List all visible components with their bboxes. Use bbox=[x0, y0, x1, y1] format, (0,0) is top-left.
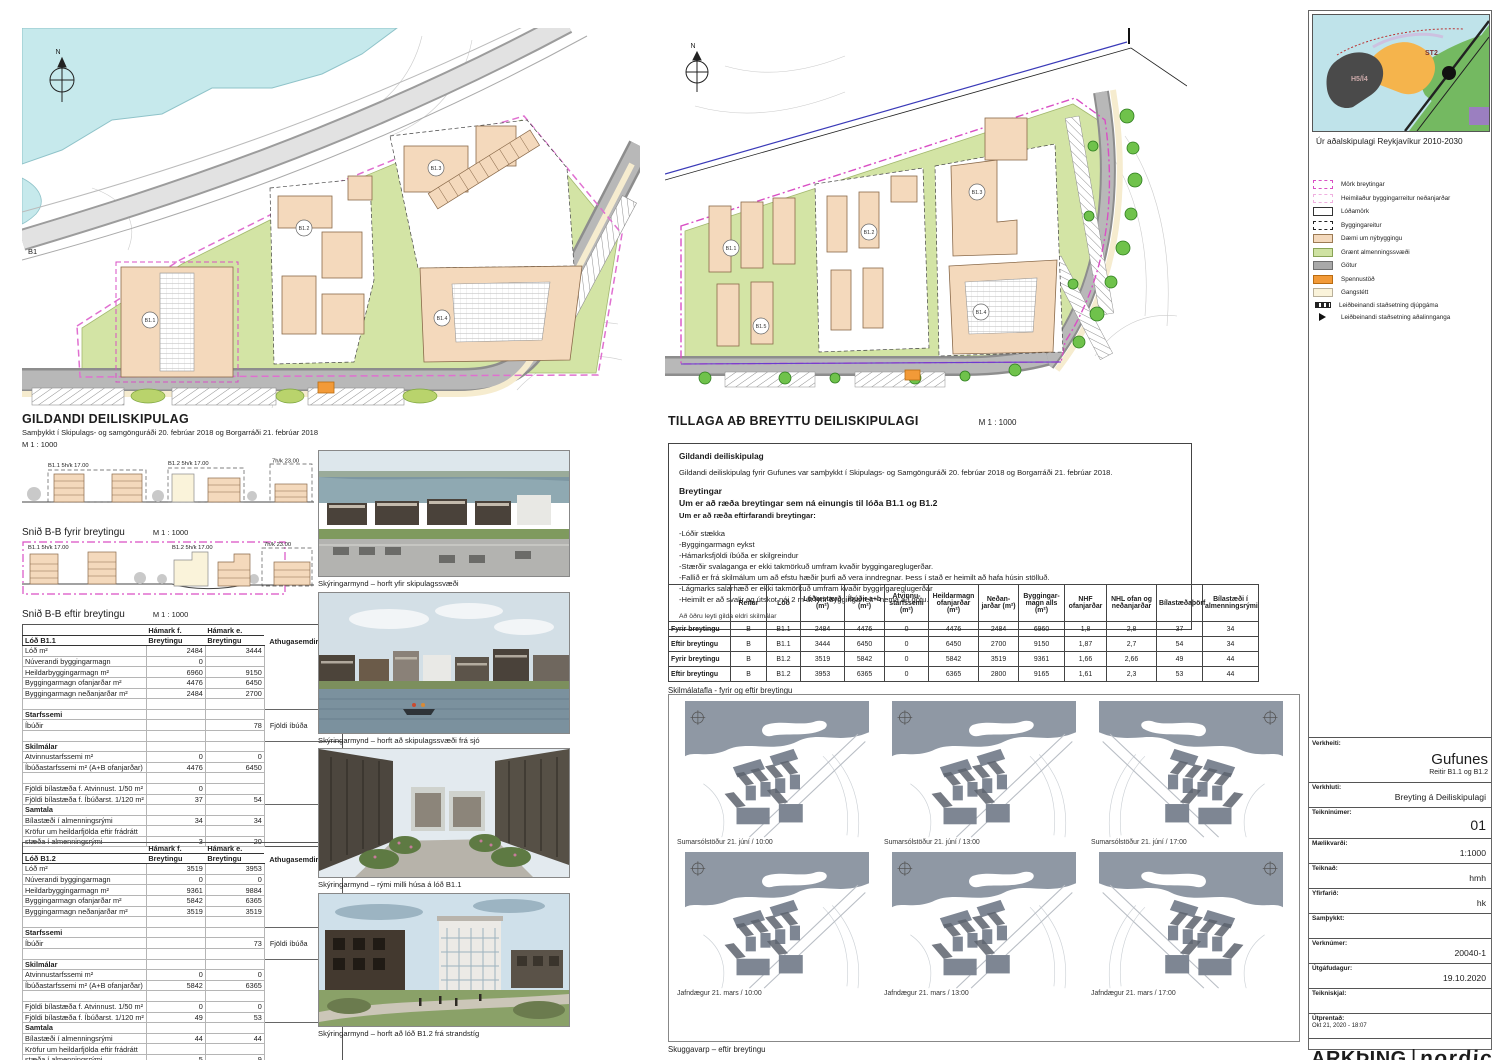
table-row: Skilmálar bbox=[23, 741, 343, 752]
shadow-cell: Sumarsólstöður 21. júní / 10:00 bbox=[677, 701, 877, 846]
photo-1: Skýringarmynd – horft yfir skipulagssvæð… bbox=[318, 450, 568, 588]
section-after-scale: M 1 : 1000 bbox=[153, 610, 188, 619]
logo-nordic: nordic bbox=[1420, 1047, 1495, 1060]
table-row: Fjöldi bílastæða f. Atvinnust. 1/50 m² 0 bbox=[23, 783, 343, 794]
table-row: Heildarbyggingarmagn m² 9361 9884 bbox=[23, 885, 343, 896]
section-before-label: Snið B-B fyrir breytingu bbox=[22, 527, 125, 538]
legend-item: Gangstétt bbox=[1313, 288, 1487, 297]
table-row: Lóð m² 3519 3953 bbox=[23, 864, 343, 875]
column-header: Bílastæðaþörf bbox=[1157, 585, 1203, 622]
title-block-field: Útgáfudagur: 19.10.2020 bbox=[1309, 964, 1491, 989]
legend-swatch bbox=[1313, 234, 1333, 243]
boat bbox=[403, 709, 435, 715]
legend-item: Byggingareitur bbox=[1313, 221, 1487, 230]
shadow-cell: Sumarsólstöður 21. júní / 13:00 bbox=[884, 701, 1084, 846]
table-row: Núverandi byggingarmagn 0 0 bbox=[23, 874, 343, 885]
table-row: Fjöldi bílastæða f. Atvinnust. 1/50 m² 0… bbox=[23, 1001, 343, 1012]
legend-label: Spennustöð bbox=[1341, 276, 1375, 283]
table-row: Skilmálar bbox=[23, 959, 343, 970]
section-after-label: Snið B-B eftir breytingu bbox=[22, 609, 125, 620]
shadow-cell: Sumarsólstöður 21. júní / 17:00 bbox=[1091, 701, 1291, 846]
svg-text:7h/k 23.00: 7h/k 23.00 bbox=[272, 459, 299, 465]
legend-item: Grænt almenningssvæði bbox=[1313, 248, 1487, 257]
table-row bbox=[23, 991, 343, 1002]
table-row: Starfssemi bbox=[23, 927, 343, 938]
plan-legend: Mörk breytingar Heimilaður byggingarreit… bbox=[1309, 174, 1491, 332]
bullet-line: -Hámarksfjöldi íbúða er skilgreindur bbox=[679, 550, 1181, 561]
svg-text:B1.2: B1.2 bbox=[299, 226, 310, 232]
title-block-field: Mælikvarði: 1:1000 bbox=[1309, 839, 1491, 864]
logo-arkthing: ARKÞING bbox=[1311, 1048, 1407, 1060]
svg-text:B1.2 5h/k 17.00: B1.2 5h/k 17.00 bbox=[168, 461, 209, 467]
inset-label-h5: H5/Í4 bbox=[1351, 74, 1368, 83]
sea bbox=[22, 28, 397, 164]
title-block-field: Verknúmer: 20040-1 bbox=[1309, 939, 1491, 964]
column-header bbox=[669, 585, 731, 622]
table-row: Fjöldi bílastæða f. Íbúðarst. 1/120 m² 3… bbox=[23, 794, 343, 805]
svg-text:B1.4: B1.4 bbox=[437, 316, 448, 322]
project-sub: Reitir B1.1 og B1.2 bbox=[1312, 769, 1488, 776]
spennustod bbox=[318, 382, 334, 393]
shadow-cell: Jafndægur 21. mars / 17:00 bbox=[1091, 852, 1291, 997]
legend-swatch bbox=[1313, 261, 1333, 270]
legend-swatch bbox=[1319, 313, 1326, 321]
svg-text:B1.3: B1.3 bbox=[431, 166, 442, 172]
svg-text:7h/k 23.00: 7h/k 23.00 bbox=[264, 542, 291, 548]
table-row: Byggingarmagn ofanjarðar m² 4476 6450 bbox=[23, 677, 343, 688]
photo-4-caption: Skýringarmynd – horft að lóð B1.2 frá st… bbox=[318, 1029, 568, 1038]
svg-text:B1.3: B1.3 bbox=[972, 190, 983, 196]
lot-b12-buildings bbox=[815, 168, 929, 352]
legend-swatch bbox=[1313, 275, 1333, 284]
svg-text:B1.4: B1.4 bbox=[976, 310, 987, 316]
svg-text:B1.2 5h/k 17.00: B1.2 5h/k 17.00 bbox=[172, 545, 213, 551]
svg-text:B1.1: B1.1 bbox=[145, 318, 156, 324]
legend-label: Leiðbeinandi staðsetning djúpgáma bbox=[1339, 302, 1438, 309]
table-row: Kröfur um heildarfjölda eftir frádrátt bbox=[23, 1044, 343, 1055]
legend-label: Mörk breytingar bbox=[1341, 181, 1385, 188]
right-plan-title: TILLAGA AÐ BREYTTU DEILISKIPULAGI bbox=[668, 414, 919, 428]
bottom-road bbox=[665, 356, 1047, 387]
logo-divider: | bbox=[1411, 1045, 1417, 1060]
table-row: stæða í almenningsrými 5 9 bbox=[23, 1054, 343, 1060]
legend-item: Dæmi um nýbyggingu bbox=[1313, 234, 1487, 243]
table-row: Starfssemi bbox=[23, 709, 343, 720]
column-header: NHF ofanjarðar bbox=[1065, 585, 1107, 622]
table-row: Íbúðir 73 Fjöldi íbúða bbox=[23, 938, 343, 949]
table-row: Atvinnustarfssemi m² 0 0 bbox=[23, 752, 343, 763]
info-heading-1: Gildandi deiliskipulag bbox=[679, 451, 1181, 463]
table-row: Íbúðir 78 Fjöldi íbúða bbox=[23, 720, 343, 731]
table-row: Íbúðastarfssemi m² (A+B ofanjarðar) 5842… bbox=[23, 980, 343, 991]
shadow-caption: Sumarsólstöður 21. júní / 10:00 bbox=[677, 839, 877, 846]
table-row: Fyrir breytinguBB1.1 248444760 447624846… bbox=[669, 622, 1259, 637]
legend-label: Grænt almenningssvæði bbox=[1341, 249, 1410, 256]
project-field: Verkheiti: Gufunes Reitir B1.1 og B1.2 bbox=[1309, 738, 1491, 783]
legend-swatch bbox=[1313, 288, 1333, 297]
site-plan-existing: N B1 B1.1 B1.2 B1.3 B1.4 bbox=[22, 28, 640, 408]
table-row bbox=[23, 730, 343, 741]
table-row: Atvinnustarfssemi m² 0 0 bbox=[23, 970, 343, 981]
column-header: Bílastæði í almenningsrými bbox=[1203, 585, 1259, 622]
title-block-column: ST2 H5/Í4 Úr aðalskipulagi Reykjavíkur 2… bbox=[1308, 10, 1492, 1050]
legend-label: Heimilaður byggingarreitur neðanjarðar bbox=[1341, 195, 1450, 202]
title-block-field: Teikniskjal: bbox=[1309, 989, 1491, 1014]
table-row: Byggingarmagn neðanjarðar m² 2484 2700 bbox=[23, 688, 343, 699]
shadow-cell: Jafndægur 21. mars / 13:00 bbox=[884, 852, 1084, 997]
north-arrow bbox=[686, 52, 708, 92]
svg-text:B1.5: B1.5 bbox=[756, 324, 767, 330]
info-heading-2: Breytingar bbox=[679, 485, 1181, 497]
photo-1-caption: Skýringarmynd – horft yfir skipulagssvæð… bbox=[318, 579, 568, 588]
left-plan-title-block: GILDANDI DEILISKIPULAG Samþykkt í Skipul… bbox=[22, 412, 382, 449]
title-block-field: Útprentað: Okt 21, 2020 - 18:07 bbox=[1309, 1014, 1491, 1039]
bullet-line: -Byggingarmagn eykst bbox=[679, 539, 1181, 550]
column-header: Atvinnu- starfssemi (m²) bbox=[885, 585, 929, 622]
photo-3-caption: Skýringarmynd – rými milli húsa á lóð B1… bbox=[318, 880, 568, 889]
table-row: Kröfur um heildarfjölda eftir frádrátt bbox=[23, 826, 343, 837]
table-row: Núverandi byggingarmagn 0 bbox=[23, 656, 343, 667]
column-header: NHL ofan og neðanjarðar bbox=[1107, 585, 1157, 622]
inset-label-st2: ST2 bbox=[1425, 50, 1438, 57]
svg-text:B1.2: B1.2 bbox=[864, 230, 875, 236]
legend-swatch bbox=[1313, 180, 1333, 189]
shadow-caption: Jafndægur 21. mars / 13:00 bbox=[884, 990, 1084, 997]
shadow-cell: Jafndægur 21. mars / 10:00 bbox=[677, 852, 877, 997]
right-plan-scale: M 1 : 1000 bbox=[979, 418, 1017, 427]
left-plan-scale: M 1 : 1000 bbox=[22, 440, 382, 449]
legend-swatch bbox=[1315, 302, 1331, 308]
section-after: B1.1 5h/k 17.00 B1.2 5h/k 17.00 7h/k 23.… bbox=[22, 540, 314, 620]
table-row bbox=[23, 773, 343, 784]
lot-table-b11: Hámark f. Hámark e. Lóð B1.1 Breytingu B… bbox=[22, 624, 343, 847]
info-line-2: Um er að ræða eftirfarandi breytingar: bbox=[679, 510, 1181, 521]
column-header: Lóðarstærð (m²) bbox=[801, 585, 845, 622]
table-row: Eftir breytinguBB1.2 395363650 636528009… bbox=[669, 667, 1259, 682]
compass-n: N bbox=[55, 49, 60, 56]
legend-label: Byggingareitur bbox=[1341, 222, 1382, 229]
bullet-line: -Lóðir stækka bbox=[679, 528, 1181, 539]
site-plan-proposed: N B1.1 B1.2 B1.3 B1.4 B1.5 bbox=[665, 26, 1187, 408]
info-line-1: Um er að ræða breytingar sem ná einungis… bbox=[679, 497, 1181, 509]
title-block-field: Teikninúmer: 01 bbox=[1309, 808, 1491, 839]
svg-text:B1.1 5h/k 17.00: B1.1 5h/k 17.00 bbox=[48, 463, 89, 469]
table-row: Byggingarmagn ofanjarðar m² 5842 6365 bbox=[23, 895, 343, 906]
legend-label: Dæmi um nýbyggingu bbox=[1341, 235, 1402, 242]
table-row bbox=[23, 948, 343, 959]
title-block-field: Teiknað: hmh bbox=[1309, 864, 1491, 889]
table-row: Samtala bbox=[23, 1023, 343, 1034]
inset-caption: Úr aðalskipulagi Reykjavíkur 2010-2030 bbox=[1312, 132, 1488, 148]
table-row bbox=[23, 699, 343, 710]
legend-label: Gangstétt bbox=[1341, 289, 1368, 296]
table-row: Fyrir breytinguBB1.2 351958420 584235199… bbox=[669, 652, 1259, 667]
table-row: Íbúðastarfssemi m² (A+B ofanjarðar) 4476… bbox=[23, 762, 343, 773]
legend-item: Spennustöð bbox=[1313, 275, 1487, 284]
inset-map: ST2 H5/Í4 Úr aðalskipulagi Reykjavíkur 2… bbox=[1309, 11, 1491, 148]
lot-b12-buildings bbox=[270, 176, 374, 364]
photo-4: Skýringarmynd – horft að lóð B1.2 frá st… bbox=[318, 893, 568, 1038]
shadow-box-caption: Skuggavarp – eftir breytingu bbox=[668, 1045, 766, 1054]
table-row: Bílastæði í almenningsrými 44 44 bbox=[23, 1033, 343, 1044]
legend-item: Lóðamörk bbox=[1313, 207, 1487, 216]
legend-item: Mörk breytingar bbox=[1313, 180, 1487, 189]
title-block-field: Samþykkt: bbox=[1309, 914, 1491, 939]
table-row: Eftir breytinguBB1.1 344464500 645027009… bbox=[669, 637, 1259, 652]
spennustod bbox=[905, 370, 920, 380]
svg-text:B1.1: B1.1 bbox=[726, 246, 737, 252]
table-row: Lóð m² 2484 3444 bbox=[23, 646, 343, 657]
legend-label: Lóðamörk bbox=[1341, 208, 1369, 215]
firm-logo: ARKÞING | nordic bbox=[1309, 1039, 1491, 1060]
column-header: Byggingar- magn alls (m²) bbox=[1019, 585, 1065, 622]
skilmalatafla: ReiturLóðLóðarstærð (m²)Íbúðir a+b (m²)A… bbox=[668, 584, 1259, 695]
table-row: Fjöldi bílastæða f. Íbúðarst. 1/120 m² 4… bbox=[23, 1012, 343, 1023]
column-header: Lóð bbox=[767, 585, 801, 622]
table-row: Bílastæði í almenningsrými 34 34 bbox=[23, 815, 343, 826]
shadow-caption: Jafndægur 21. mars / 17:00 bbox=[1091, 990, 1291, 997]
legend-swatch bbox=[1313, 207, 1333, 216]
legend-item: Leiðbeinandi staðsetning aðalinnganga bbox=[1313, 313, 1487, 321]
table-row: Heildarbyggingarmagn m² 6960 9150 bbox=[23, 667, 343, 678]
section-before-scale: M 1 : 1000 bbox=[153, 528, 188, 537]
legend-swatch bbox=[1313, 221, 1333, 230]
legend-label: Leiðbeinandi staðsetning aðalinnganga bbox=[1341, 314, 1450, 321]
title-block-fields: Verkheiti: Gufunes Reitir B1.1 og B1.2 V… bbox=[1309, 737, 1491, 1060]
legend-item: Götur bbox=[1313, 261, 1487, 270]
lot-b11-buildings bbox=[116, 262, 238, 382]
area-label: B1 bbox=[28, 247, 37, 256]
shadow-caption: Sumarsólstöður 21. júní / 17:00 bbox=[1091, 839, 1291, 846]
column-header: Íbúðir a+b (m²) bbox=[845, 585, 885, 622]
column-header: Heildarmagn ofanjarðar (m²) bbox=[929, 585, 979, 622]
legend-swatch bbox=[1313, 248, 1333, 257]
project-label: Verkheiti: bbox=[1312, 740, 1488, 747]
legend-item: Heimilaður byggingarreitur neðanjarðar bbox=[1313, 194, 1487, 203]
table-row: Samtala bbox=[23, 805, 343, 816]
drawing-sheet: N B1 B1.1 B1.2 B1.3 B1.4 GILDANDI DEILIS… bbox=[0, 0, 1500, 1060]
column-header: Neðan- jarðar (m²) bbox=[979, 585, 1019, 622]
column-header: Reitur bbox=[731, 585, 767, 622]
left-plan-title: GILDANDI DEILISKIPULAG bbox=[22, 412, 382, 426]
section-before: B1.1 5h/k 17.00 B1.2 5h/k 17.00 7h/k 23.… bbox=[22, 458, 314, 538]
svg-text:B1.1 5h/k 17.00: B1.1 5h/k 17.00 bbox=[28, 545, 69, 551]
frame-tick bbox=[1128, 28, 1130, 44]
compass-n: N bbox=[690, 43, 695, 50]
title-block-field: Verkhluti: Breyting á Deiliskipulagi bbox=[1309, 783, 1491, 808]
lot-table-b12: Hámark f. Hámark e. Lóð B1.2 Breytingu B… bbox=[22, 842, 343, 1060]
legend-label: Götur bbox=[1341, 262, 1357, 269]
info-para-1: Gildandi deiliskipulag fyrir Gufunes var… bbox=[679, 467, 1181, 478]
table-row bbox=[23, 917, 343, 928]
left-plan-subtitle: Samþykkt í Skipulags- og samgönguráði 20… bbox=[22, 428, 382, 437]
photo-2-caption: Skýringarmynd – horft að skipulagssvæði … bbox=[318, 736, 568, 745]
right-plan-title-block: TILLAGA AÐ BREYTTU DEILISKIPULAGI M 1 : … bbox=[668, 414, 1188, 428]
photo-3: Skýringarmynd – rými milli húsa á lóð B1… bbox=[318, 748, 568, 889]
bullet-line: -Stærðir svalaganga er ekki takmörkuð um… bbox=[679, 561, 1181, 572]
shadow-caption: Sumarsólstöður 21. júní / 13:00 bbox=[884, 839, 1084, 846]
table-row: Byggingarmagn neðanjarðar m² 3519 3519 bbox=[23, 906, 343, 917]
bullet-line: -Fallið er frá skilmálum um að efstu hæð… bbox=[679, 572, 1181, 583]
legend-item: Leiðbeinandi staðsetning djúpgáma bbox=[1313, 302, 1487, 309]
title-block-field: Yfirfarið: hk bbox=[1309, 889, 1491, 914]
photo-2: Skýringarmynd – horft að skipulagssvæði … bbox=[318, 592, 568, 745]
project-name: Gufunes bbox=[1312, 751, 1488, 768]
legend-swatch bbox=[1313, 194, 1333, 203]
shadow-study-box: Sumarsólstöður 21. júní / 10:00 Sumarsól… bbox=[668, 694, 1300, 1042]
shadow-caption: Jafndægur 21. mars / 10:00 bbox=[677, 990, 877, 997]
